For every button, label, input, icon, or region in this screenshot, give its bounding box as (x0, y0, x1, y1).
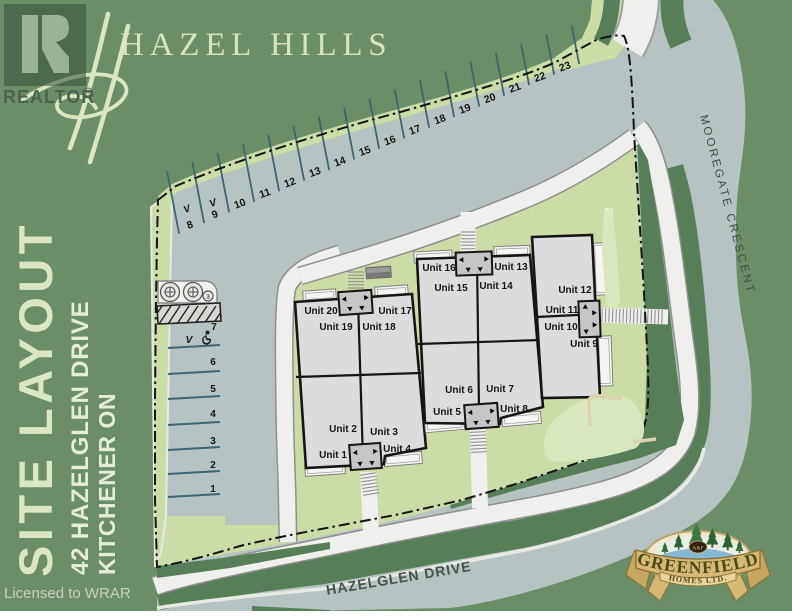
svg-text:KITCHENER ON: KITCHENER ON (94, 393, 120, 575)
svg-text:Unit 8: Unit 8 (500, 404, 528, 415)
svg-text:5: 5 (210, 384, 216, 395)
svg-text:Licensed to WRAR: Licensed to WRAR (4, 585, 131, 602)
svg-text:Unit 9: Unit 9 (570, 339, 598, 350)
svg-text:3: 3 (210, 436, 216, 447)
svg-text:Unit 5: Unit 5 (433, 407, 461, 418)
svg-text:Unit 17: Unit 17 (378, 306, 412, 317)
svg-text:Unit 14: Unit 14 (479, 281, 513, 292)
svg-text:Unit 10: Unit 10 (544, 322, 578, 333)
svg-text:SITE LAYOUT: SITE LAYOUT (9, 221, 62, 577)
svg-text:1: 1 (210, 484, 216, 495)
svg-text:Unit 2: Unit 2 (329, 424, 357, 435)
svg-text:Unit 1: Unit 1 (319, 450, 347, 461)
svg-text:Unit 7: Unit 7 (486, 384, 514, 395)
svg-text:R: R (86, 91, 91, 97)
svg-text:42 HAZELGLEN DRIVE: 42 HAZELGLEN DRIVE (67, 301, 94, 575)
svg-text:Unit 13: Unit 13 (494, 262, 528, 273)
svg-text:3: 3 (206, 294, 210, 301)
svg-text:A&F: A&F (692, 546, 703, 552)
svg-text:4: 4 (210, 409, 216, 420)
svg-text:Unit 12: Unit 12 (558, 285, 592, 296)
svg-text:Unit 6: Unit 6 (445, 385, 473, 396)
svg-text:Unit 3: Unit 3 (370, 427, 398, 438)
svg-text:6: 6 (210, 357, 216, 368)
svg-text:Unit 16: Unit 16 (422, 263, 456, 274)
svg-text:HAZEL HILLS: HAZEL HILLS (120, 27, 392, 63)
svg-text:Unit 18: Unit 18 (362, 322, 396, 333)
svg-text:7: 7 (211, 322, 217, 333)
svg-text:Unit 15: Unit 15 (434, 283, 468, 294)
svg-text:Unit 20: Unit 20 (304, 306, 338, 317)
svg-text:Unit 19: Unit 19 (319, 322, 353, 333)
svg-text:2: 2 (210, 460, 216, 471)
svg-text:Unit 11: Unit 11 (546, 305, 579, 316)
svg-text:Unit 4: Unit 4 (383, 444, 411, 455)
svg-text:REALTOR: REALTOR (3, 87, 95, 107)
